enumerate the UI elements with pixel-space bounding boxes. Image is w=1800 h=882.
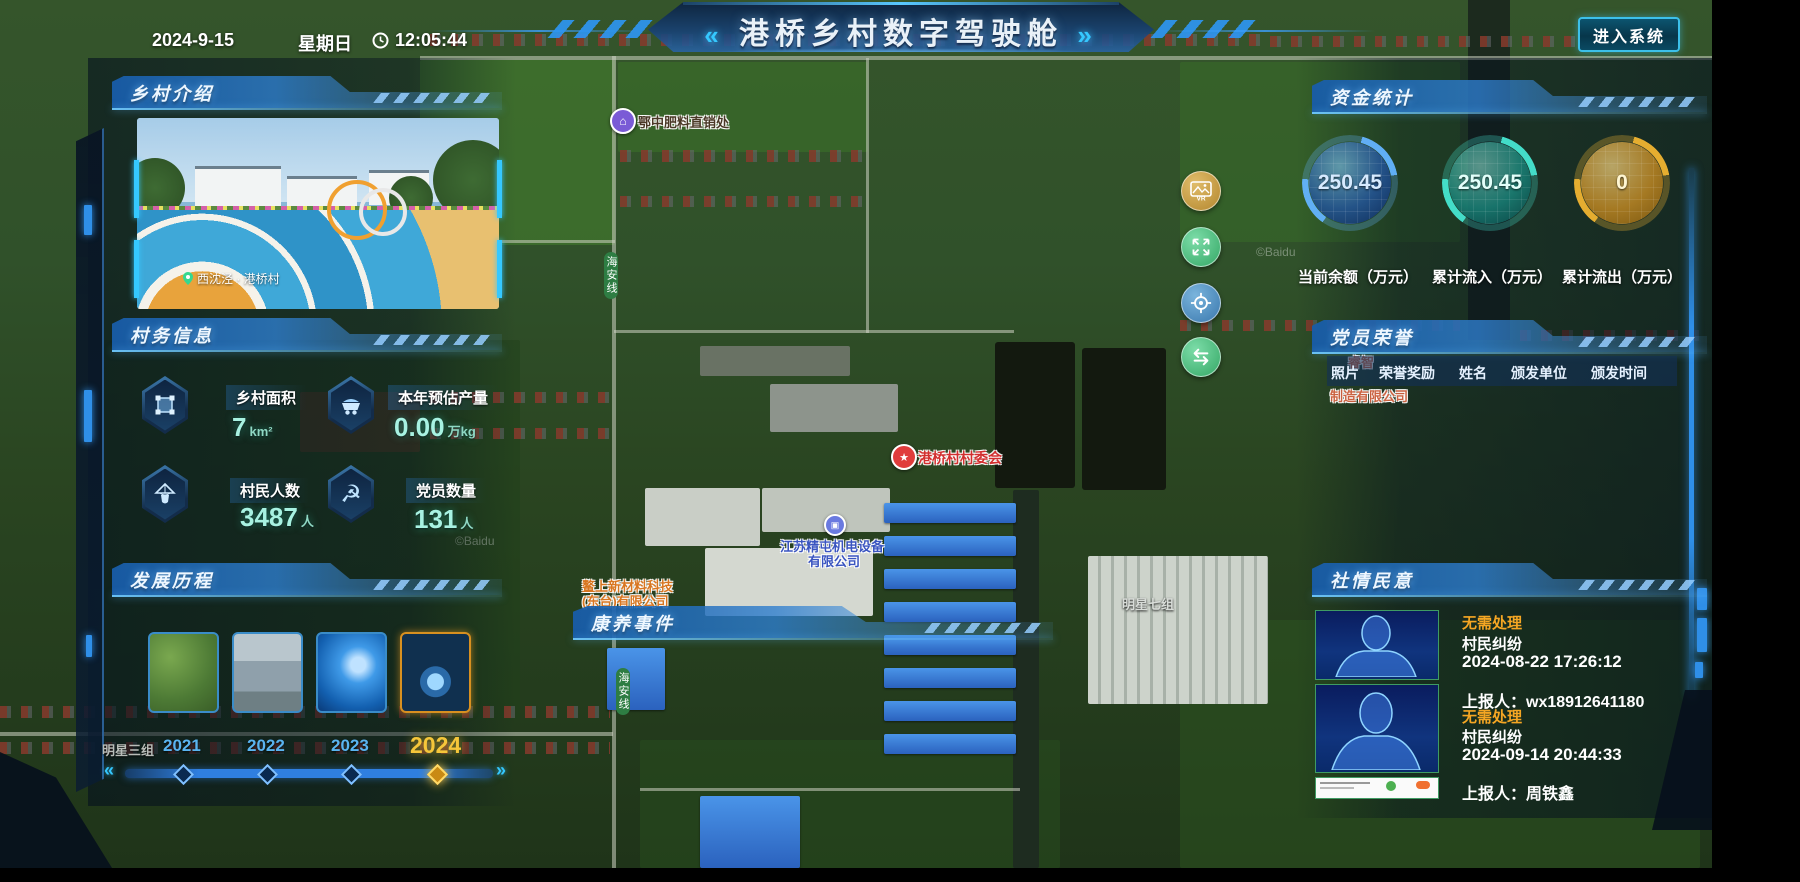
history-thumbnail-2023[interactable] <box>316 632 387 713</box>
blue-roof <box>884 734 1016 754</box>
photo-corner-accent <box>497 240 502 298</box>
blue-roof <box>884 701 1016 721</box>
panel-title-honors: 党员荣誉 <box>1330 324 1414 350</box>
warehouse <box>1088 556 1268 704</box>
group3-map-label: 明星三组 <box>102 740 154 759</box>
village-houses <box>620 196 865 207</box>
stat-value-area: 7km² <box>232 412 273 443</box>
header-stripes <box>373 580 496 590</box>
page-title-text: 港桥乡村数字驾驶舱 <box>739 18 1063 51</box>
enter-system-button[interactable]: 进入系统 <box>1578 17 1680 52</box>
honors-col-issuer: 颁发单位 <box>1511 363 1567 383</box>
history-thumbnail-2024[interactable] <box>400 632 471 713</box>
frame-glow <box>84 390 92 442</box>
honors-table-header: 照片 荣誉奖励 姓名 颁发单位 颁发时间 <box>1327 356 1677 386</box>
gauge-inflow: 250.45 <box>1442 135 1538 231</box>
honors-col-photo: 照片 <box>1331 363 1359 383</box>
stat-value-yield: 0.00万kg <box>394 412 476 443</box>
photo-caption-text: 西沈泾 · 港桥村 <box>197 270 280 287</box>
panel-title-intro: 乡村介绍 <box>130 80 214 106</box>
stat-number: 0.00 <box>394 412 445 442</box>
photo-building <box>195 166 281 207</box>
panel-title-sentiment: 社情民意 <box>1330 567 1414 593</box>
photo-corner-accent <box>497 160 502 218</box>
stat-unit: 人 <box>301 514 314 529</box>
year-2023[interactable]: 2023 <box>331 736 369 756</box>
fullscreen-button[interactable] <box>1181 227 1221 267</box>
village-photo[interactable]: 西沈泾 · 港桥村 <box>137 118 499 309</box>
road-name-badge: 海安线 <box>616 668 630 715</box>
sentiment-status-2: 无需处理 <box>1462 706 1522 727</box>
honors-col-award: 荣誉奖励 <box>1379 363 1435 383</box>
holographic-person-icon <box>1316 685 1436 770</box>
company-poi-icon[interactable]: ▣ <box>824 514 846 536</box>
current-weekday: 星期日 <box>298 30 352 56</box>
road <box>612 56 616 868</box>
company-poi-label-line2[interactable]: 有限公司 <box>808 551 860 570</box>
panel-header-history: 发展历程 <box>112 563 502 595</box>
dashboard-stage: ©Baidu ©Baidu ⌂ 鄂中肥料直销处 ★ 港桥村村委会 ▣ 江苏精屯机… <box>0 0 1800 882</box>
locate-button[interactable] <box>1181 283 1221 323</box>
header-stripes <box>1578 97 1701 107</box>
page-title: « 港桥乡村数字驾驶舱 » <box>648 9 1154 53</box>
village-houses <box>620 150 870 162</box>
buildings <box>700 346 850 376</box>
stat-unit: 人 <box>460 516 473 531</box>
frame-glow <box>1695 662 1703 678</box>
sentiment-attachment-thumbnail[interactable] <box>1315 777 1439 799</box>
scene: ©Baidu ©Baidu ⌂ 鄂中肥料直销处 ★ 港桥村村委会 ▣ 江苏精屯机… <box>0 0 1712 868</box>
vr-photo-button[interactable]: VR <box>1181 171 1221 211</box>
current-date: 2024-9-15 <box>152 30 234 51</box>
stat-unit: 万kg <box>448 424 476 439</box>
honors-col-name: 姓名 <box>1459 363 1487 383</box>
photo-corner-accent <box>134 160 139 218</box>
panel-header-health: 康养事件 <box>573 606 1053 638</box>
blue-roof <box>884 569 1016 589</box>
stat-label-party: 党员数量 <box>406 478 486 503</box>
timeline-prev-arrow[interactable]: « <box>104 760 114 781</box>
committee-buildings <box>770 384 898 432</box>
pond <box>1082 348 1166 490</box>
factory-building <box>645 488 760 546</box>
gauge-value: 0 <box>1574 135 1670 231</box>
photo-playground <box>137 210 499 309</box>
panel-title-affairs: 村务信息 <box>130 322 214 348</box>
header-stripes <box>373 93 496 103</box>
holographic-person-icon <box>1316 611 1436 677</box>
switch-arrows-icon <box>1190 347 1212 367</box>
photo-corner-accent <box>134 240 139 298</box>
gauge-value: 250.45 <box>1302 135 1398 231</box>
location-pin-icon <box>183 272 193 285</box>
title-banner: « 港桥乡村数字驾驶舱 » <box>648 2 1154 52</box>
panel-header-sentiment: 社情民意 <box>1312 563 1707 595</box>
sentiment-category-1: 村民纠纷 <box>1462 633 1522 654</box>
header-stripes <box>924 623 1047 633</box>
timeline-next-arrow[interactable]: » <box>496 760 506 781</box>
blue-roof <box>700 796 800 868</box>
company3-poi-label-line2: 制造有限公司 <box>1330 386 1408 405</box>
panel-header-funds: 资金统计 <box>1312 80 1707 112</box>
panel-header-intro: 乡村介绍 <box>112 76 502 108</box>
stat-unit: km² <box>249 424 272 439</box>
blue-roof <box>884 668 1016 688</box>
gauge-value: 250.45 <box>1442 135 1538 231</box>
year-2024[interactable]: 2024 <box>410 732 461 759</box>
map-watermark: ©Baidu <box>1256 245 1296 259</box>
stat-number: 3487 <box>240 502 298 532</box>
stat-label-area: 乡村面积 <box>226 385 306 410</box>
stat-number: 131 <box>414 504 457 534</box>
fertilizer-poi-icon[interactable]: ⌂ <box>610 108 636 134</box>
committee-poi-label[interactable]: 港桥村村委会 <box>918 448 1002 468</box>
history-thumbnail-2022[interactable] <box>232 632 303 713</box>
title-left-chevrons: « <box>704 20 724 50</box>
sentiment-status-1: 无需处理 <box>1462 612 1522 633</box>
fullscreen-icon <box>1191 237 1211 257</box>
title-right-chevrons: » <box>1077 20 1097 50</box>
blue-roof <box>884 503 1016 523</box>
panel-title-health: 康养事件 <box>591 610 675 636</box>
history-thumbnail-2021[interactable] <box>148 632 219 713</box>
canal <box>1013 490 1039 868</box>
sentiment-avatar-1[interactable] <box>1315 610 1439 680</box>
blue-roof <box>884 536 1016 556</box>
vr-photo-icon: VR <box>1190 181 1212 201</box>
sentiment-time-2: 2024-09-14 20:44:33 <box>1462 745 1622 765</box>
title-deco-dashes-left <box>547 20 654 38</box>
frame-glow <box>86 635 92 657</box>
sentiment-category-2: 村民纠纷 <box>1462 726 1522 747</box>
locate-icon <box>1190 292 1212 314</box>
pond <box>995 342 1075 488</box>
group7-map-label: 明星七组 <box>1122 594 1174 613</box>
panel-header-honors: 党员荣誉 <box>1312 320 1707 352</box>
road-name-badge: 海安线 <box>604 252 618 299</box>
title-deco-line-right <box>1155 30 1375 32</box>
committee-poi-icon[interactable]: ★ <box>891 444 917 470</box>
header-stripes <box>373 335 496 345</box>
stat-label-yield: 本年预估产量 <box>388 385 498 410</box>
fertilizer-poi-label[interactable]: 鄂中肥料直销处 <box>638 112 729 131</box>
gauge-outflow: 0 <box>1574 135 1670 231</box>
sentiment-avatar-2[interactable] <box>1315 684 1439 773</box>
road <box>614 330 1014 333</box>
current-time: 12:05:44 <box>395 30 467 51</box>
clock-icon <box>372 32 389 49</box>
sentiment-reporter-2: 上报人：周铁鑫 <box>1462 780 1574 804</box>
header-stripes <box>1578 580 1701 590</box>
sentiment-time-1: 2024-08-22 17:26:12 <box>1462 652 1622 672</box>
honors-col-date: 颁发时间 <box>1591 363 1647 383</box>
frame-glow <box>1697 618 1707 652</box>
photo-arch-sculpture <box>359 188 407 236</box>
field-patch <box>618 62 868 152</box>
stat-number: 7 <box>232 412 246 442</box>
road <box>640 788 1020 791</box>
photo-caption: 西沈泾 · 港桥村 <box>183 270 280 287</box>
right-frame-decor <box>1689 168 1694 698</box>
frame-glow <box>84 205 92 235</box>
panel-title-funds: 资金统计 <box>1330 84 1414 110</box>
village-houses <box>1270 36 1610 47</box>
title-deco-dashes-right <box>1150 20 1257 38</box>
layer-switch-button[interactable] <box>1181 337 1221 377</box>
year-2021[interactable]: 2021 <box>163 736 201 756</box>
gauge-balance: 250.45 <box>1302 135 1398 231</box>
panel-header-affairs: 村务信息 <box>112 318 502 350</box>
gauge-label-outflow: 累计流出（万元） <box>1542 266 1702 287</box>
stat-value-villagers: 3487人 <box>240 502 314 533</box>
svg-text:VR: VR <box>1196 196 1205 202</box>
header-stripes <box>1578 337 1701 347</box>
stat-value-party: 131人 <box>414 504 473 535</box>
road <box>866 58 869 333</box>
stat-label-villagers: 村民人数 <box>230 478 310 503</box>
panel-title-history: 发展历程 <box>130 567 214 593</box>
year-2022[interactable]: 2022 <box>247 736 285 756</box>
